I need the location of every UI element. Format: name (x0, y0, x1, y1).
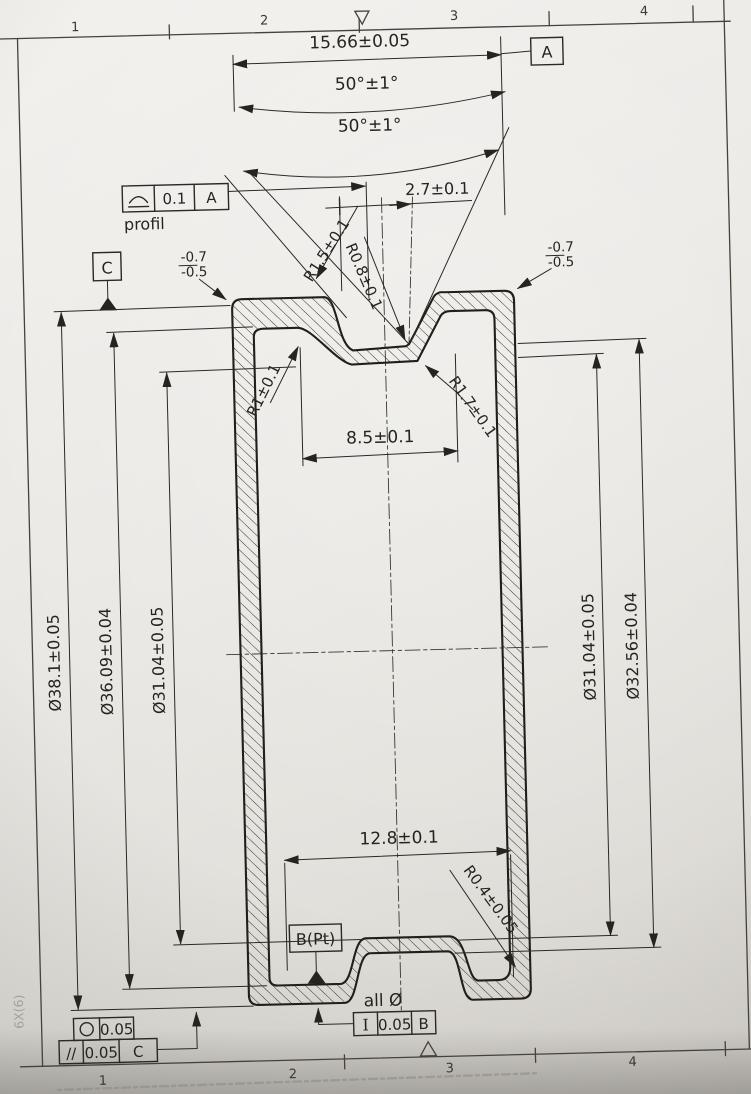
datum-c-label: C (101, 258, 113, 277)
edge-note-left: -0.7 -0.5 (179, 249, 226, 301)
dim-dia-38: Ø38.1±0.05 (44, 614, 65, 712)
profile-symbol-icon (129, 196, 147, 202)
fcf-profile-caption: profil (124, 214, 165, 234)
zone-bottom-3: 3 (445, 1061, 454, 1076)
fine-print-row (58, 1073, 538, 1090)
dim-bottom-width: 12.8±0.1 (284, 826, 514, 982)
dim-dia-32: Ø32.56±0.04 (621, 592, 643, 700)
dim-dia-36: Ø36.09±0.04 (95, 608, 117, 716)
fcf-profile: 0.1 A profil (122, 180, 366, 234)
parallelism-symbol: // (66, 1044, 77, 1062)
sheet-border (0, 0, 751, 1077)
fcf-parallelism-tol: 0.05 (84, 1043, 118, 1062)
datum-b-label: B(Pt) (296, 929, 336, 949)
dim-angle-inner-value: 50°±1° (338, 115, 402, 137)
edge-right-lower: -0.5 (548, 254, 575, 271)
dim-center-offset: 2.7±0.1 (325, 179, 474, 292)
fcf-runout-tol: 0.05 (378, 1015, 412, 1034)
edge-note-right: -0.7 -0.5 (517, 239, 575, 288)
dim-top-width-value: 15.66±0.05 (309, 31, 410, 53)
note-all-diameters: all Ø (364, 990, 403, 1011)
fcf-profile-datum: A (206, 189, 217, 207)
edge-left-lower: -0.5 (181, 264, 208, 281)
fcf-profile-tol: 0.1 (162, 190, 186, 209)
datum-b: B(Pt) (289, 924, 342, 984)
datum-a-label: A (541, 43, 552, 62)
fcf-runout-datum: B (418, 1015, 429, 1033)
revision-triangle-bottom (420, 1042, 436, 1056)
circularity-symbol-icon (80, 1023, 93, 1036)
dim-angle-outer-value: 50°±1° (335, 73, 399, 95)
zone-bottom-4: 4 (628, 1055, 637, 1070)
dim-dia-31-left: Ø31.04±0.05 (147, 606, 169, 714)
zone-numbers: 1 2 3 4 1 2 3 4 (71, 4, 674, 1089)
dim-angle-inner: 50°±1° (243, 113, 499, 179)
fcf-parallelism-datum: C (133, 1043, 144, 1061)
fcf-circularity: 0.05 (73, 1017, 134, 1040)
zone-top-3: 3 (450, 9, 459, 24)
zone-bottom-1: 1 (99, 1074, 108, 1089)
runout-symbol: I (362, 1015, 369, 1034)
dim-groove-floor-value: 8.5±0.1 (346, 427, 415, 449)
dim-radius-right: R1.7±0.1 (445, 373, 501, 441)
zone-top-1: 1 (71, 20, 80, 35)
datum-c-triangle (99, 297, 117, 310)
sheet-edge-note: 6X(6) (11, 994, 27, 1029)
revision-triangle-top (355, 11, 369, 24)
zone-top-2: 2 (260, 13, 269, 28)
dim-bottom-width-value: 12.8±0.1 (359, 828, 439, 850)
datum-c: C (93, 252, 122, 311)
zone-bottom-2: 2 (289, 1067, 298, 1082)
fcf-circularity-tol: 0.05 (100, 1020, 134, 1039)
dim-center-offset-value: 2.7±0.1 (405, 179, 470, 200)
dim-angle-outer: 50°±1° (238, 71, 505, 116)
datum-b-triangle (307, 970, 325, 983)
engineering-drawing: 1 2 3 4 1 2 3 4 6X(6) (0, 0, 751, 1094)
zone-top-4: 4 (640, 4, 649, 19)
dim-dia-31-right: Ø31.04±0.05 (578, 593, 600, 701)
